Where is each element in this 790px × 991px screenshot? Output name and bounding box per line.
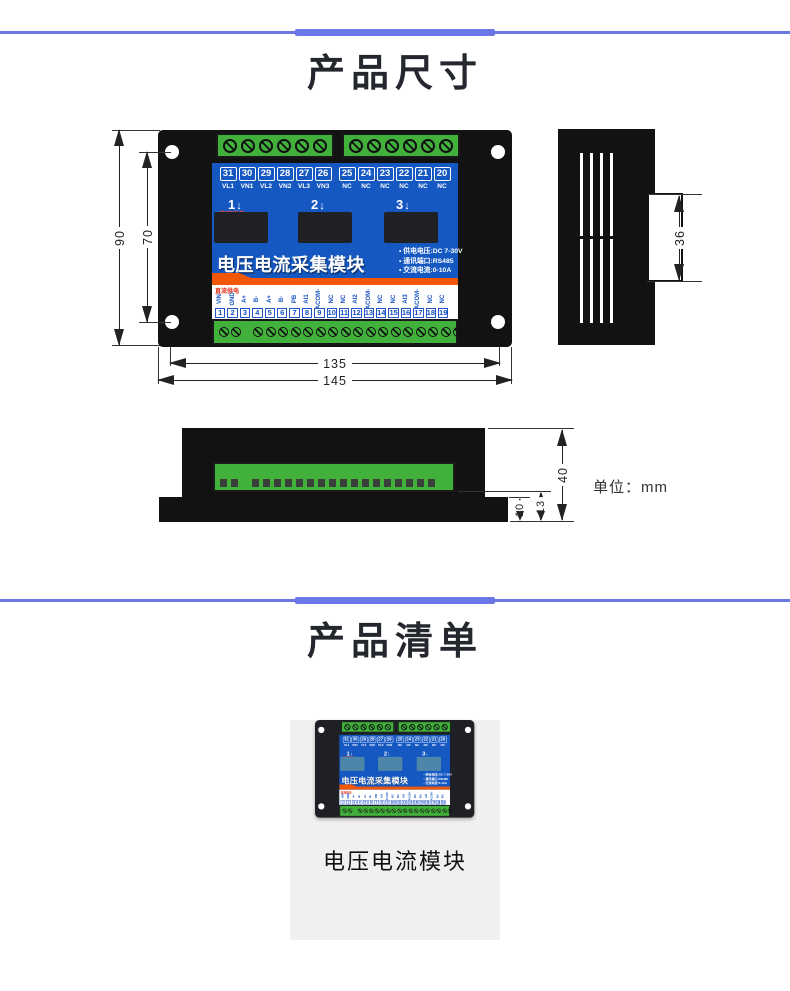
terminal-number: 16 (424, 800, 429, 805)
terminal-number: 11 (339, 308, 349, 318)
terminal-number-row-bottom: 12345678910111213141516171819 (215, 308, 448, 318)
terminal-hole (329, 479, 336, 487)
terminal-hole (220, 479, 227, 487)
dimension-90: 90 (119, 130, 120, 345)
dimension-value: 135 (318, 357, 352, 371)
transformer-slot (298, 212, 352, 243)
channel-marker: 2 ↓ (384, 750, 390, 757)
terminal-hole (428, 479, 435, 487)
channel-marker: 2 ↓ (311, 197, 325, 212)
screw-icon (448, 809, 453, 814)
terminal-number: 8 (302, 308, 312, 318)
terminal-number: 10 (391, 800, 396, 805)
terminal-label-row-bottom: VINGNDA+B-A+B-PBAI1ACOM-NCNCAI2ACOM-NCNC… (215, 291, 448, 307)
terminal-hole (351, 479, 358, 487)
screw-icon (367, 139, 381, 153)
mounting-hole (491, 145, 505, 159)
screw-icon (420, 809, 425, 814)
screw-icon (223, 139, 237, 153)
terminal-number: 5 (265, 308, 275, 318)
screw-icon (437, 809, 442, 814)
dimension-40: 40 (562, 430, 563, 520)
transformer-slot (340, 757, 364, 771)
terminal-number: 10 (327, 308, 337, 318)
terminal-hole (384, 479, 391, 487)
terminal-number: 1 (215, 308, 225, 318)
terminal-number: 4 (357, 800, 362, 805)
transformer-slot (214, 212, 268, 243)
screw-icon (352, 724, 358, 730)
spec-item: • 交流电流:0-10A (399, 266, 463, 276)
terminal-hole (263, 479, 270, 487)
down-arrow-icon: ↓ (236, 200, 242, 212)
bottom-terminal-block (339, 805, 450, 817)
module-front-view: 313029282726252423222120 VL1VN1VL2VN2VL3… (315, 720, 474, 818)
screw-icon (291, 327, 301, 337)
dimension-135: 135 (170, 363, 500, 364)
terminal-label-rotated: AI2 (402, 792, 407, 799)
terminal-label-rotated: AI2 (351, 291, 361, 307)
channel-number: 1 (228, 197, 235, 212)
mounting-hole (465, 727, 471, 733)
terminal-label-rotated: AI3 (424, 792, 429, 799)
terminal-label-rotated: NC (396, 792, 401, 799)
screw-icon (348, 809, 353, 814)
product-dimensions-diagram: 313029282726252423222120 VL1VN1VL2VN2VL3… (0, 110, 790, 555)
terminal-hole (395, 479, 402, 487)
terminal-hole (307, 479, 314, 487)
terminal-number: 5 (363, 800, 368, 805)
screw-icon (360, 724, 366, 730)
terminal-hole (231, 479, 238, 487)
screw-icon (377, 724, 383, 730)
top-terminal-block-right (398, 721, 451, 732)
terminal-label-rotated: PB (289, 291, 299, 307)
terminal-label-rotated: NC (419, 792, 424, 799)
screw-icon (385, 139, 399, 153)
terminal-number: 18 (426, 308, 436, 318)
dimension-70: 70 (147, 152, 148, 322)
terminal-hole (362, 479, 369, 487)
terminal-hole-group-right (252, 479, 435, 487)
terminal-number: 16 (401, 308, 411, 318)
dimension-value: 13 (535, 496, 547, 516)
unit-label: 单位：mm (593, 476, 668, 497)
screw-icon (366, 327, 376, 337)
spec-item: • 供电电压:DC 7-30V (399, 247, 463, 257)
terminal-hole-group-left (220, 479, 238, 487)
dimension-10: 10 (519, 499, 520, 520)
dimension-value: 70 (141, 226, 155, 248)
screw-group-right (253, 327, 463, 337)
terminal-number: 17 (413, 308, 423, 318)
bottom-label-strip: 直流供电 VINGNDA+B-A+B-PBAI1ACOM-NCNCAI2ACOM… (212, 285, 458, 319)
screw-icon (408, 809, 413, 814)
terminal-hole (285, 479, 292, 487)
section-title-list: 产品清单 (0, 616, 790, 668)
screw-icon (416, 327, 426, 337)
screw-icon (241, 139, 255, 153)
product-photo-module: 313029282726252423222120 VL1VN1VL2VN2VL3… (315, 720, 474, 818)
dimension-value: 10 (514, 499, 526, 519)
screw-icon (363, 809, 368, 814)
terminal-number: 7 (289, 308, 299, 318)
terminal-hole (340, 479, 347, 487)
screw-icon (417, 724, 423, 730)
front-panel: 313029282726252423222120 VL1VN1VL2VN2VL3… (339, 735, 450, 805)
spec-item: • 通讯端口:RS485 (399, 257, 463, 267)
screw-icon (428, 327, 438, 337)
screw-icon (295, 139, 309, 153)
screw-icon (358, 809, 363, 814)
terminal-number: 14 (413, 800, 418, 805)
terminal-label-rotated: AI1 (380, 792, 385, 799)
screw-icon (386, 809, 391, 814)
dimension-145: 145 (158, 380, 512, 381)
section-divider-top (0, 29, 790, 36)
terminal-number: 19 (438, 308, 448, 318)
screw-icon (253, 327, 263, 337)
top-terminal-block-left (216, 133, 334, 158)
terminal-hole (373, 479, 380, 487)
mounting-hole (491, 315, 505, 329)
terminal-label-rotated: A+ (265, 291, 275, 307)
mounting-hole (318, 803, 324, 809)
screw-icon (342, 809, 347, 814)
screw-icon (328, 327, 338, 337)
screw-icon (385, 724, 391, 730)
bottom-label-strip: 直流供电 VINGNDA+B-A+B-PBAI1ACOM-NCNCAI2ACOM… (339, 790, 450, 805)
down-arrow-icon: ↓ (404, 200, 410, 212)
screw-icon (341, 327, 351, 337)
terminal-label-rotated: NC (339, 291, 349, 307)
channel-marker: 1 ↓ (347, 750, 353, 757)
dimension-36: 36 (679, 196, 680, 280)
terminal-label-rotated: B- (357, 792, 362, 799)
terminal-number: 8 (380, 800, 385, 805)
screw-icon (403, 809, 408, 814)
top-terminal-block-right (342, 133, 460, 158)
down-arrow-icon: ↓ (319, 200, 325, 212)
terminal-hole (406, 479, 413, 487)
dimension-value: 36 (673, 227, 687, 249)
product-card: 313029282726252423222120 VL1VN1VL2VN2VL3… (290, 720, 500, 940)
terminal-number: 2 (346, 800, 351, 805)
top-terminal-block-left (341, 721, 394, 732)
screw-icon (409, 724, 415, 730)
terminal-number: 6 (277, 308, 287, 318)
terminal-label-rotated: GND (346, 792, 351, 799)
terminal-hole (318, 479, 325, 487)
module-front-view: 313029282726252423222120 VL1VN1VL2VN2VL3… (158, 130, 512, 347)
screw-icon (316, 327, 326, 337)
terminal-number: 15 (388, 308, 398, 318)
mounting-hole (318, 727, 324, 733)
dimension-value: 90 (113, 227, 127, 249)
screw-icon (433, 724, 439, 730)
channel-marker: 3 ↓ (422, 750, 428, 757)
extension-line (647, 281, 702, 282)
terminal-label-rotated: AI3 (401, 291, 411, 307)
screw-icon (425, 809, 430, 814)
screw-icon (414, 809, 419, 814)
terminal-number-row-bottom: 12345678910111213141516171819 (341, 800, 446, 805)
terminal-label-rotated: GND (227, 291, 237, 307)
channel-number: 2 (311, 197, 318, 212)
terminal-number: 7 (374, 800, 379, 805)
screw-group-left (342, 809, 352, 814)
terminal-label-rotated: PB (374, 792, 379, 799)
terminal-label-rotated: NC (413, 792, 418, 799)
screw-icon (380, 809, 385, 814)
terminal-label-rotated: ACOM- (385, 792, 390, 799)
screw-icon (397, 809, 402, 814)
channel-marker: 1 ↓ (228, 197, 242, 212)
terminal-number: 4 (252, 308, 262, 318)
terminal-number: 3 (240, 308, 250, 318)
screw-icon (403, 327, 413, 337)
terminal-number: 6 (369, 800, 374, 805)
terminal-hole (417, 479, 424, 487)
vent-slots-upper (580, 153, 613, 236)
extension-line (510, 521, 574, 522)
transformer-slot (378, 757, 402, 771)
screw-icon (313, 139, 327, 153)
product-photo: 313029282726252423222120 VL1VN1VL2VN2VL3… (315, 720, 475, 820)
terminal-holes (220, 479, 435, 487)
channel-marker: 3 ↓ (396, 197, 410, 212)
terminal-number: 1 (341, 800, 346, 805)
screw-icon (425, 724, 431, 730)
screw-group-right (358, 809, 453, 814)
screw-icon (303, 327, 313, 337)
terminal-label-rotated: AI1 (302, 291, 312, 307)
screw-icon (369, 809, 374, 814)
screw-icon (259, 139, 273, 153)
terminal-label-rotated: NC (441, 792, 446, 799)
terminal-label-rotated: B- (252, 291, 262, 307)
screw-icon (392, 809, 397, 814)
screw-icon (277, 139, 291, 153)
terminal-label-rotated: ACOM- (314, 291, 324, 307)
screw-icon (278, 327, 288, 337)
bottom-view-terminal-strip (213, 462, 455, 492)
screw-icon (453, 327, 463, 337)
product-name-label: 电压电流模块 (290, 844, 500, 876)
terminal-number: 19 (441, 800, 446, 805)
terminal-label-rotated: NC (388, 291, 398, 307)
spec-item: • 交流电流:0-10A (423, 781, 452, 785)
screw-icon (441, 327, 451, 337)
screw-icon (266, 327, 276, 337)
screw-icon (349, 139, 363, 153)
screw-icon (431, 809, 436, 814)
terminal-number: 11 (396, 800, 401, 805)
terminal-hole (252, 479, 259, 487)
terminal-number: 15 (419, 800, 424, 805)
screw-icon (421, 139, 435, 153)
screw-icon (403, 139, 417, 153)
transformer-slot (417, 757, 441, 771)
spec-list: • 供电电压:DC 7-30V• 通讯端口:RS485• 交流电流:0-10A (399, 247, 463, 276)
mounting-hole (465, 803, 471, 809)
dimension-13: 13 (540, 493, 541, 520)
dimension-value: 40 (556, 464, 570, 486)
terminal-number: 9 (314, 308, 324, 318)
channel-number: 3 (396, 197, 403, 212)
terminal-label-rotated: VIN (215, 291, 225, 307)
terminal-hole (274, 479, 281, 487)
terminal-label-rotated: ACOM- (430, 792, 435, 799)
bottom-terminal-block (212, 319, 458, 345)
terminal-label-rotated: ACOM- (413, 291, 423, 307)
terminal-number: 13 (408, 800, 413, 805)
section-title-dimensions: 产品尺寸 (0, 48, 790, 100)
screw-icon (369, 724, 375, 730)
screw-group-left (219, 327, 241, 337)
terminal-number: 12 (351, 308, 361, 318)
terminal-number: 13 (364, 308, 374, 318)
terminal-label-rotated: NC (438, 291, 448, 307)
terminal-number: 9 (385, 800, 390, 805)
screw-icon (219, 327, 229, 337)
screw-icon (391, 327, 401, 337)
terminal-label-rotated: B- (277, 291, 287, 307)
dimension-value: 145 (318, 374, 352, 388)
terminal-number: 2 (227, 308, 237, 318)
screw-icon (439, 139, 453, 153)
transformer-slot (384, 212, 438, 243)
spec-list: • 供电电压:DC 7-30V• 通讯端口:RS485• 交流电流:0-10A (423, 773, 452, 786)
screw-icon (401, 724, 407, 730)
terminal-label-rotated: VIN (341, 792, 346, 799)
terminal-number: 3 (352, 800, 357, 805)
screw-icon (353, 327, 363, 337)
screw-icon (344, 724, 350, 730)
screw-icon (441, 724, 447, 730)
section-divider-list (0, 597, 790, 604)
terminal-label-rotated: NC (376, 291, 386, 307)
bottom-view-flange (159, 497, 508, 522)
terminal-label-row-bottom: VINGNDA+B-A+B-PBAI1ACOM-NCNCAI2ACOM-NCNC… (341, 792, 446, 799)
terminal-label-rotated: NC (435, 792, 440, 799)
side-view (558, 129, 655, 345)
vent-slots-lower (580, 239, 613, 323)
divider-accent (295, 597, 495, 604)
terminal-label-rotated: A+ (352, 792, 357, 799)
screw-icon (375, 809, 380, 814)
terminal-hole (296, 479, 303, 487)
terminal-label-rotated: ACOM- (408, 792, 413, 799)
terminal-number: 12 (402, 800, 407, 805)
terminal-number: 18 (435, 800, 440, 805)
screw-icon (378, 327, 388, 337)
divider-accent (295, 29, 495, 36)
terminal-label-rotated: A+ (240, 291, 250, 307)
terminal-number: 17 (430, 800, 435, 805)
terminal-label-rotated: NC (426, 291, 436, 307)
front-panel: 313029282726252423222120 VL1VN1VL2VN2VL3… (212, 163, 458, 319)
screw-icon (231, 327, 241, 337)
terminal-label-rotated: NC (391, 792, 396, 799)
screw-icon (442, 809, 447, 814)
terminal-label-rotated: B- (369, 792, 374, 799)
terminal-label-rotated: ACOM- (364, 291, 374, 307)
terminal-label-rotated: A+ (363, 792, 368, 799)
terminal-label-rotated: NC (327, 291, 337, 307)
terminal-number: 14 (376, 308, 386, 318)
